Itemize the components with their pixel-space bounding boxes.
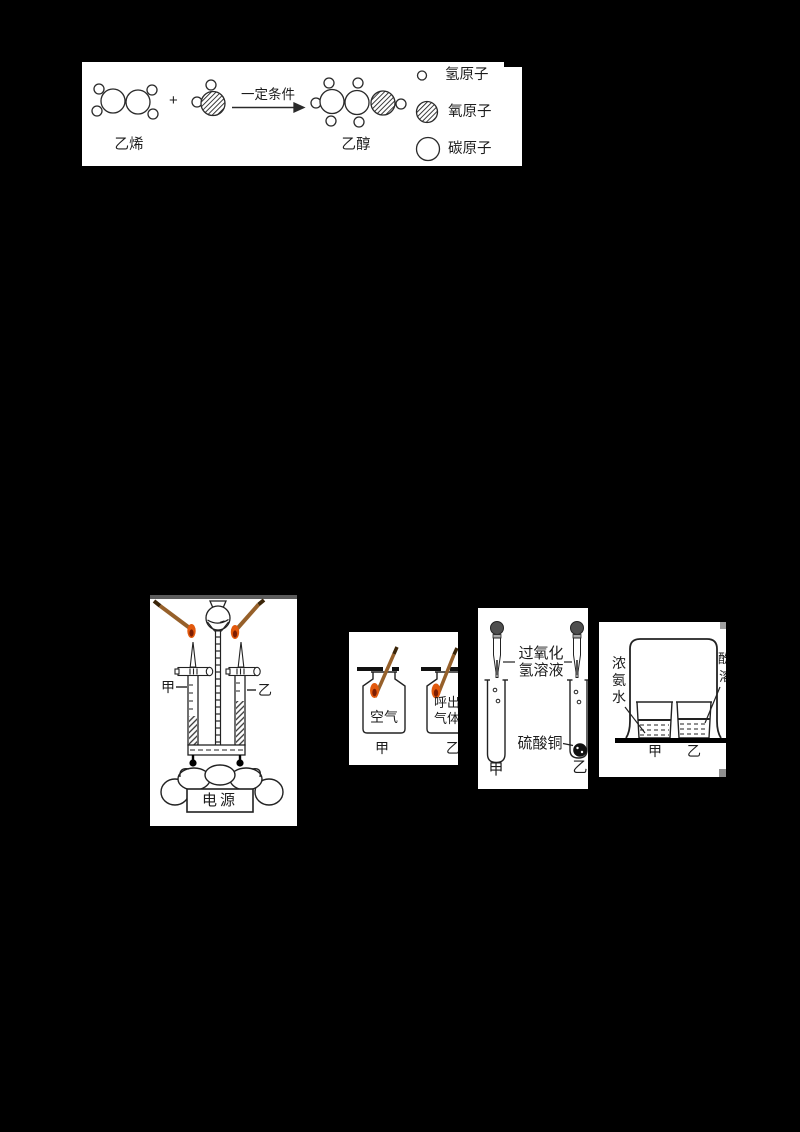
dropper-right (571, 622, 584, 678)
legend-label-carbon: 碳原子 (448, 142, 492, 157)
thistle-funnel-icon (206, 601, 230, 631)
clipped-label-char1: 酚 (718, 652, 726, 665)
tube-label-jia: 甲 (161, 680, 175, 694)
gas-tube-left (188, 675, 198, 745)
power-supply-label: 电源 (187, 793, 253, 808)
oxygen-atom-icon (371, 91, 395, 115)
hydrogen-atom-icon (326, 116, 336, 126)
bubble (493, 688, 497, 692)
beaker-jia (636, 702, 673, 738)
hydrogen-atom-icon (94, 84, 104, 94)
caption-jia: 甲 (374, 741, 390, 755)
water-molecule (192, 80, 225, 116)
bottle-content-exhaled-line2: 气体 (434, 712, 458, 725)
ammonia-diffusion-panel: 浓 氨 水 酚 溶 甲 乙 (599, 622, 726, 777)
hydrogen-atom-icon (418, 71, 427, 80)
ammonia-label-char2: 氨 (612, 673, 626, 687)
caption-yi: 乙 (571, 760, 588, 775)
ammonia-label-char3: 水 (612, 690, 626, 704)
scan-notch (504, 62, 522, 67)
carbon-atom-icon (101, 89, 125, 113)
bubble (577, 700, 581, 704)
scan-strip (150, 595, 297, 599)
gas-bottles-panel: 空气 甲 呼出 气体 乙 (349, 632, 458, 765)
bubble (496, 699, 500, 703)
liquid-column (189, 716, 197, 745)
hydrogen-peroxide-test-panel: 过氧化 氢溶液 硫酸铜 甲 乙 (478, 608, 588, 789)
stopcock-right (226, 642, 260, 676)
ethylene-molecule (92, 84, 158, 119)
liquid-column (236, 701, 244, 745)
hydrogen-atom-icon (396, 99, 406, 109)
reaction-scheme-panel: 乙烯 + 一定条件 乙醇 氢原子 氧原子 碳原子 (82, 62, 522, 166)
hydrogen-atom-icon (353, 78, 363, 88)
scan-artifact (720, 622, 726, 629)
caption-jia: 甲 (487, 762, 505, 777)
jet-tip (238, 642, 244, 667)
electrolysis-apparatus-panel: 甲 乙 电源 (150, 595, 297, 826)
hydrogen-atom-icon (324, 78, 334, 88)
bottle-content-air: 空气 (363, 710, 405, 724)
table-line (615, 738, 726, 743)
caption-jia: 甲 (647, 744, 663, 758)
connecting-tube (188, 745, 245, 755)
carbon-atom-icon (417, 138, 440, 161)
electrode-dot (189, 759, 196, 766)
product-label: 乙醇 (339, 138, 373, 153)
burning-splint-left (154, 601, 196, 638)
hydrogen-atom-icon (148, 109, 158, 119)
tube-label-yi: 乙 (258, 683, 272, 697)
hydrogen-atom-icon (354, 117, 364, 127)
caption-yi: 乙 (445, 741, 458, 755)
caption-yi: 乙 (686, 744, 702, 758)
scanned-worksheet-page: { "colors": { "background": "#000000", "… (0, 0, 800, 1132)
carbon-atom-icon (320, 90, 344, 114)
graduated-middle-tube (216, 631, 221, 747)
carbon-atom-icon (345, 91, 369, 115)
carbon-atom-icon (126, 90, 150, 114)
test-tube-left (485, 680, 509, 763)
plus-sign: + (169, 93, 178, 108)
legend-symbols (417, 71, 440, 161)
reagent-label-line1: 过氧化 (515, 646, 567, 661)
dropper-left (491, 622, 504, 678)
electrode-dot (236, 759, 243, 766)
burning-splint-right (231, 600, 264, 639)
reaction-arrow (232, 103, 304, 112)
jet-tip (190, 642, 196, 667)
oxygen-atom-icon (201, 92, 225, 116)
hydrogen-atom-icon (147, 85, 157, 95)
clipped-label-char2: 溶 (719, 670, 726, 683)
oxygen-atom-icon (417, 102, 438, 123)
reactant-label: 乙烯 (112, 138, 146, 153)
hydrogen-atom-icon (206, 80, 216, 90)
legend-label-oxygen: 氧原子 (448, 105, 492, 120)
gas-tube-right (235, 675, 245, 745)
bell-jar (626, 639, 721, 738)
bottle-content-exhaled-line1: 呼出 (434, 696, 458, 709)
hydrogen-atom-icon (92, 106, 102, 116)
legend-label-hydrogen: 氢原子 (445, 68, 489, 83)
stopcock-left (175, 642, 213, 676)
ethanol-molecule (311, 78, 406, 127)
arrow-condition-label: 一定条件 (234, 88, 302, 102)
solid-label: 硫酸铜 (516, 736, 564, 751)
bubble (574, 690, 578, 694)
reagent-label-line2: 氢溶液 (515, 663, 567, 678)
scan-artifact (719, 769, 726, 777)
ammonia-label-char1: 浓 (612, 656, 626, 670)
